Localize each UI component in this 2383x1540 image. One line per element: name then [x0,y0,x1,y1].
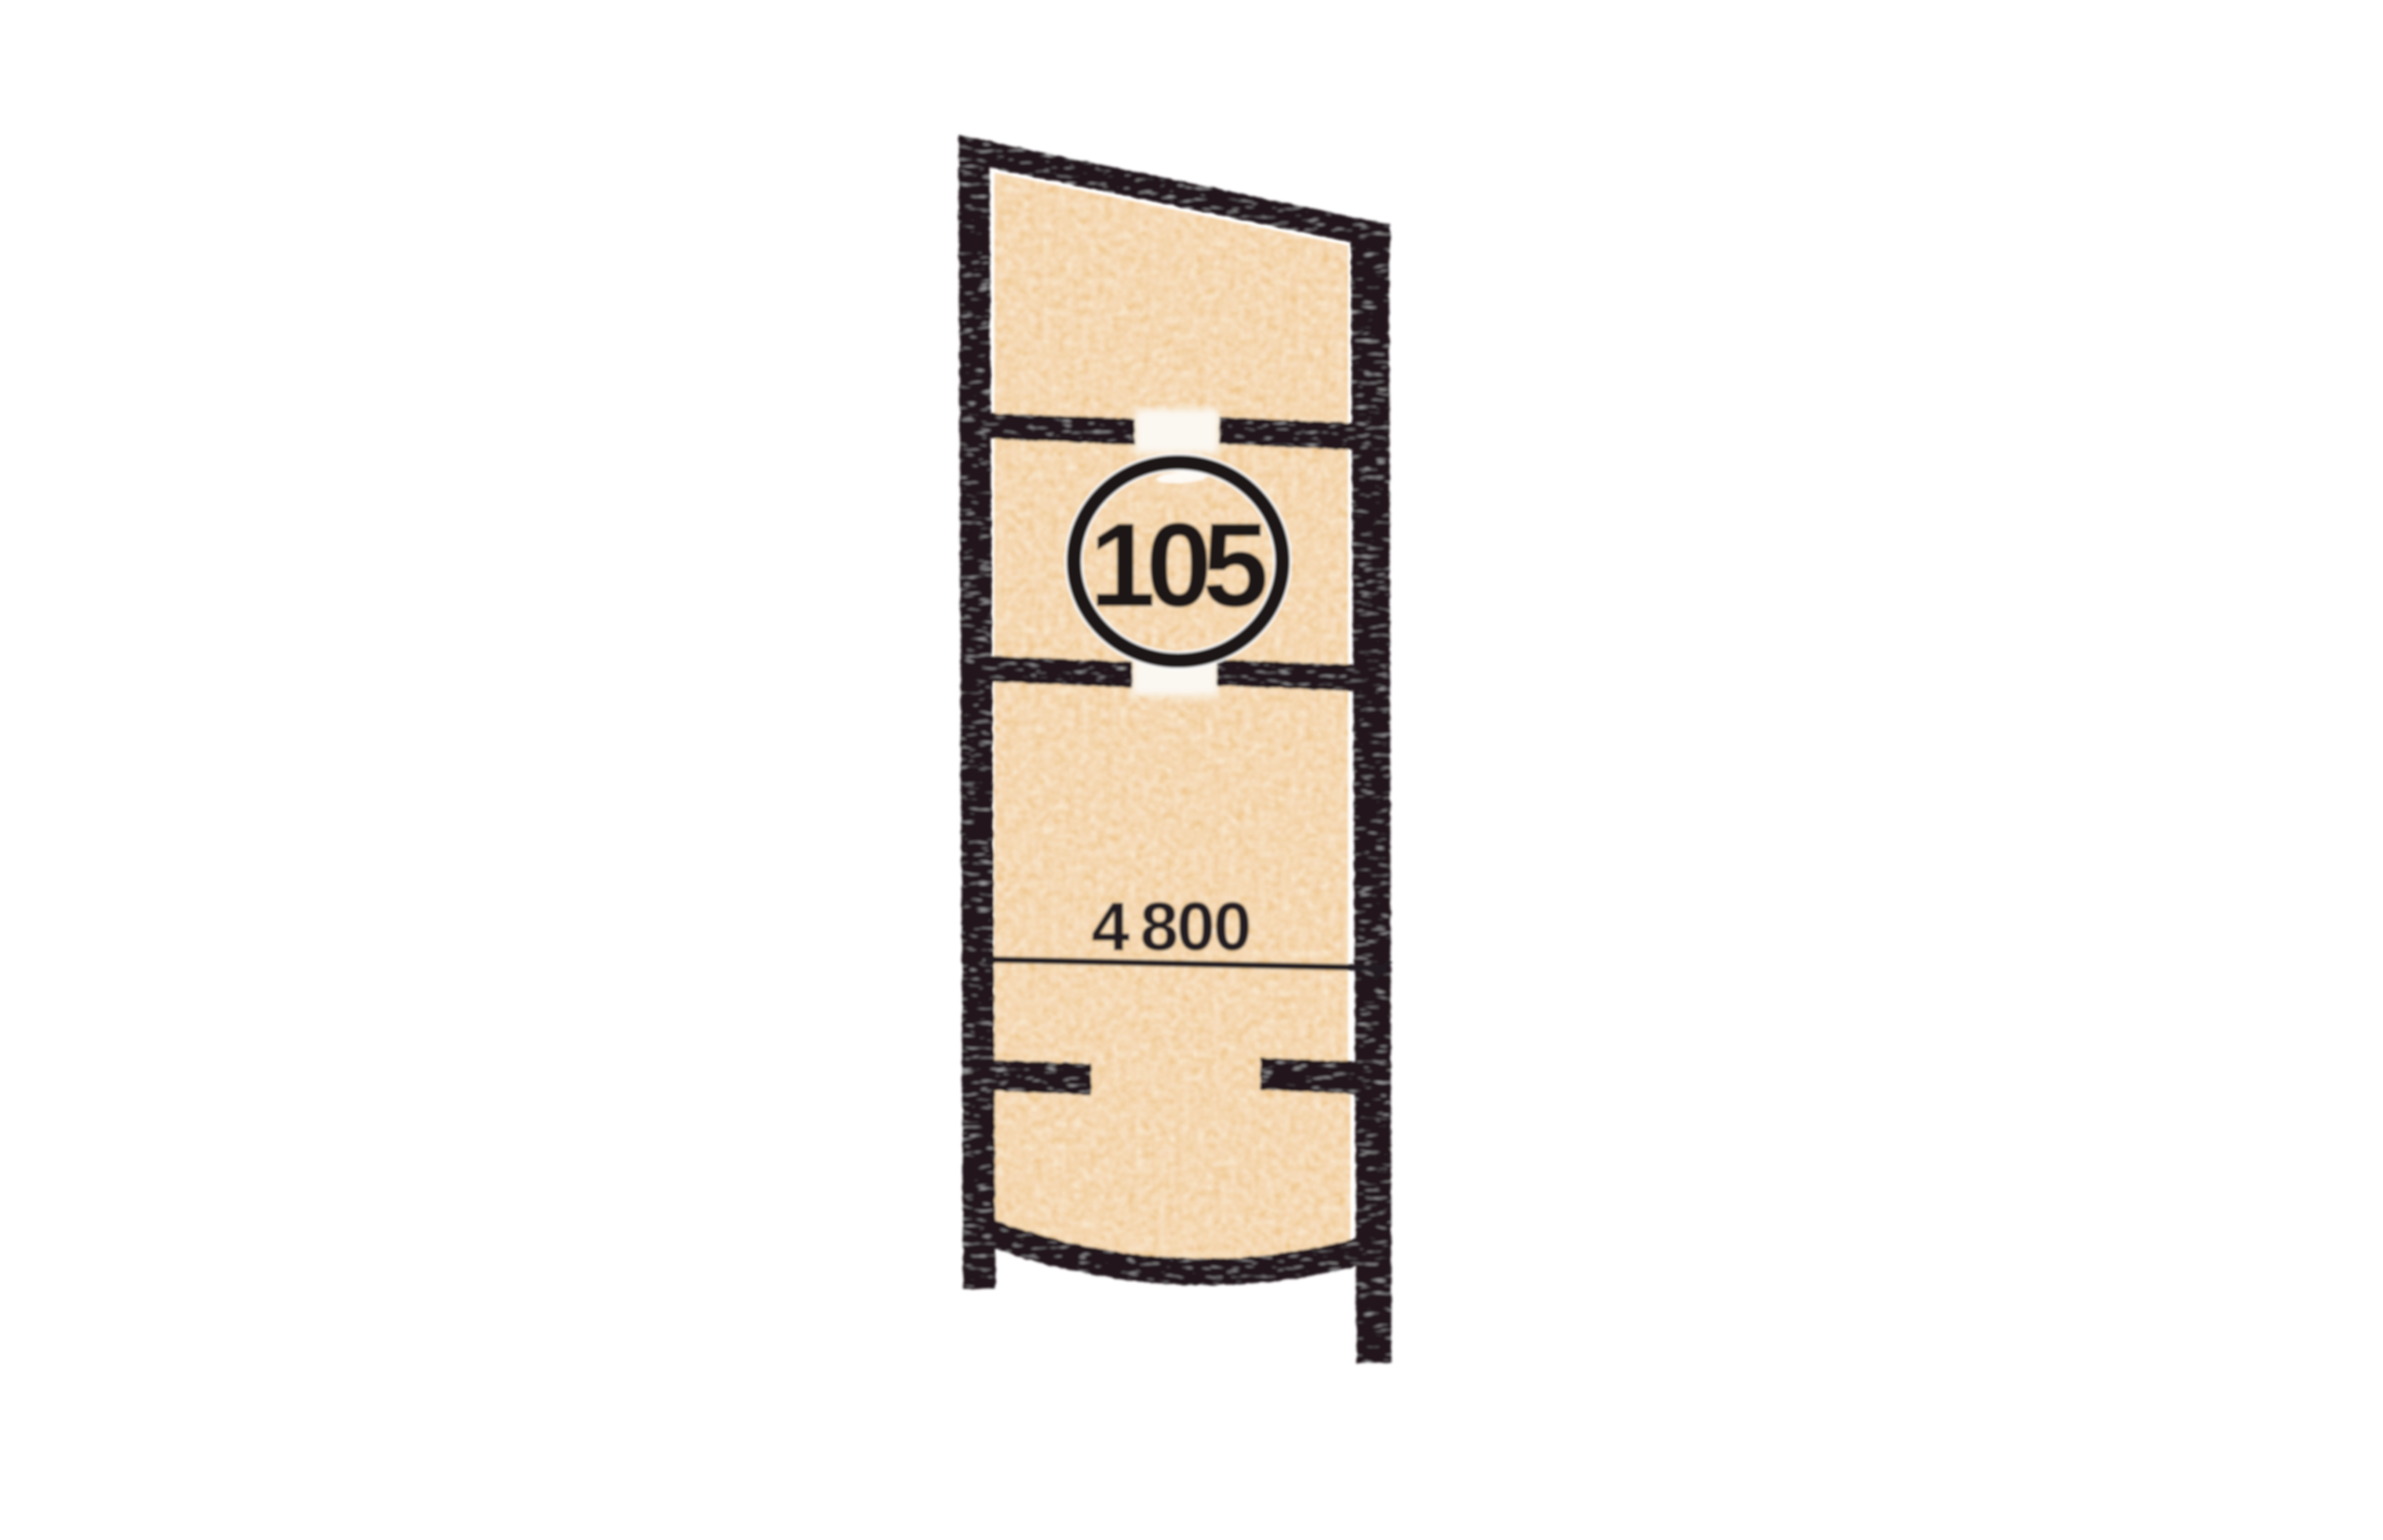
svg-text:4 800: 4 800 [1091,888,1250,965]
svg-text:105: 105 [1090,498,1266,632]
